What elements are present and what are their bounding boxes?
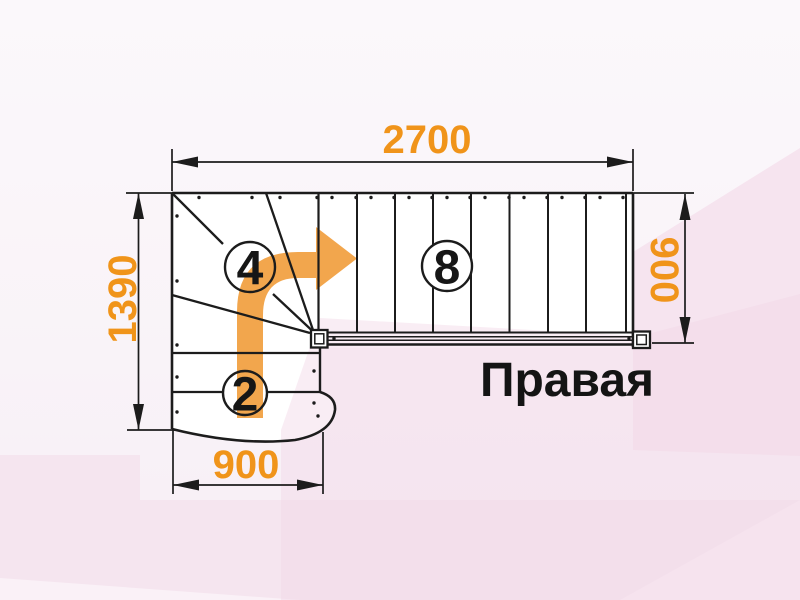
stair-plan-figure: 4 2 8 2700 1390 900 900 Правая <box>0 0 800 600</box>
newel-post-right <box>633 332 650 349</box>
dim-label-right: 900 <box>642 237 686 304</box>
dim-label-top: 2700 <box>383 118 472 162</box>
stair-drawing-canvas: 4 2 8 2700 1390 900 900 Правая <box>0 0 800 600</box>
background-facet-bottom-left <box>0 455 140 500</box>
newel-post-left <box>311 330 328 348</box>
orientation-label: Правая <box>480 354 654 407</box>
dim-label-left: 1390 <box>101 255 145 344</box>
winder-step-count: 4 <box>237 243 264 296</box>
upper-step-count: 8 <box>434 242 461 295</box>
lower-step-count: 2 <box>232 369 259 422</box>
dim-label-bottom: 900 <box>213 443 280 487</box>
